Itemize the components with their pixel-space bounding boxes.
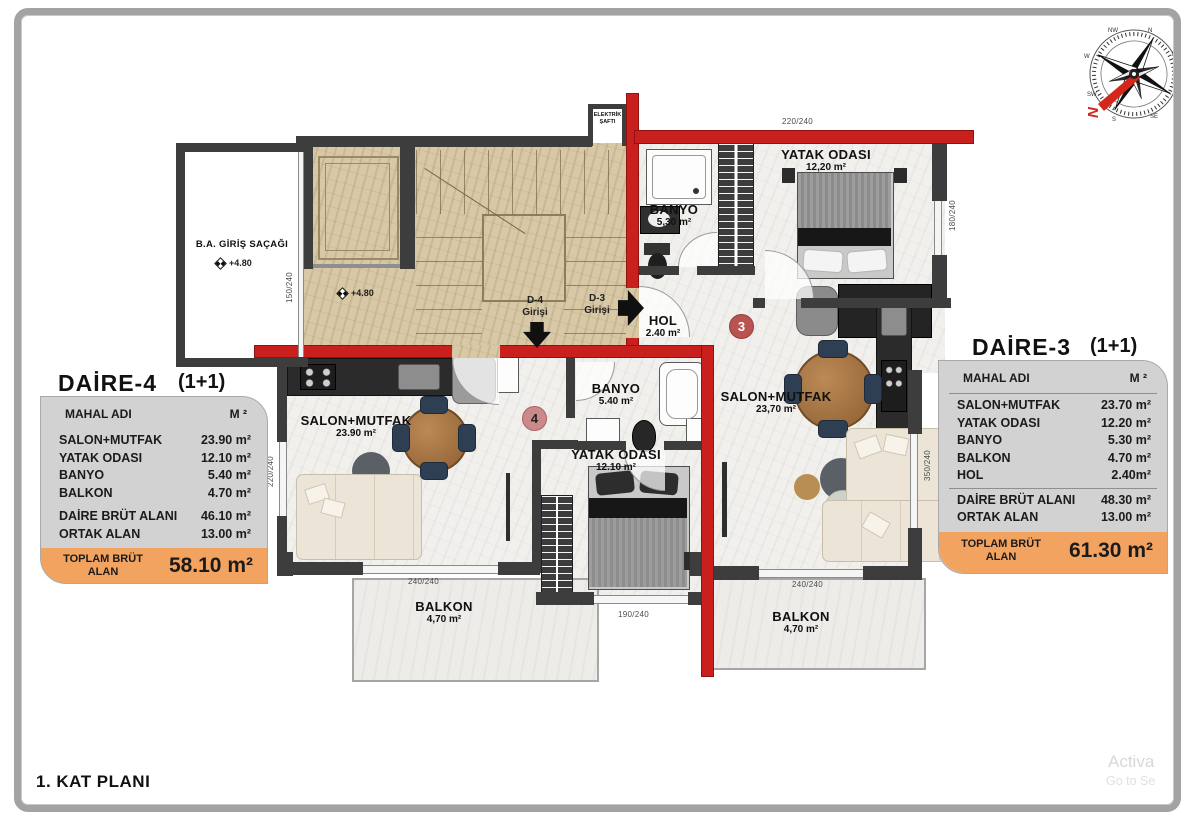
daire4-header-name: MAHAL ADI bbox=[65, 407, 132, 421]
daire3-title: DAİRE-3 bbox=[972, 334, 1071, 361]
daire3-total-row: TOPLAM BRÜT ALAN 61.30 m² bbox=[939, 532, 1167, 574]
compass-icon: N N NE E SE S SW W NW bbox=[1082, 22, 1186, 126]
salon4-side-window bbox=[279, 442, 287, 516]
hall-elevation-marker: +4.80 bbox=[338, 288, 374, 298]
room-label-balkon3: BALKON4,70 m² bbox=[755, 610, 847, 636]
dim-canopy-side: 150/240 bbox=[285, 272, 294, 303]
svg-text:SW: SW bbox=[1087, 92, 1097, 98]
yatak3-wardrobe bbox=[718, 143, 754, 275]
red-wall-horizontal-top bbox=[634, 130, 974, 144]
chair4-s bbox=[420, 462, 448, 480]
table-row: BALKON4.70 m² bbox=[41, 485, 267, 503]
table-row: BALKON4.70 m² bbox=[939, 450, 1167, 468]
yatak3-side-window bbox=[934, 201, 942, 255]
svg-text:N: N bbox=[1148, 28, 1152, 34]
banyo4-left-wall bbox=[566, 356, 575, 418]
chair4-n bbox=[420, 396, 448, 414]
room-label-banyo3: BANYO5,30 m² bbox=[628, 203, 720, 229]
canopy-elevation-marker: +4.80 bbox=[216, 258, 252, 268]
d3-entry-label: D-3Girişi bbox=[574, 293, 620, 317]
sink3-icon bbox=[881, 306, 907, 336]
room-label-yatak4: YATAK ODASI12.10 m² bbox=[558, 448, 674, 474]
divider bbox=[949, 393, 1157, 394]
yatak4-window bbox=[594, 595, 688, 604]
entrance-canopy-floor bbox=[185, 152, 299, 357]
unit4-badge: 4 bbox=[522, 406, 547, 431]
daire4-header-unit: M ² bbox=[230, 407, 247, 421]
room-label-shaft: ELEKTRİK ŞAFTI bbox=[592, 112, 623, 125]
bed4-blanket bbox=[589, 518, 687, 587]
room-label-banyo4: BANYO5.40 m² bbox=[580, 382, 652, 408]
d4-entry-label: D-4Girişi bbox=[510, 295, 560, 319]
canopy-top-wall bbox=[176, 143, 308, 152]
daire3-area-table: MAHAL ADI M ² SALON+MUTFAK23.70 m² YATAK… bbox=[938, 360, 1168, 574]
corner-block-se3 bbox=[908, 552, 922, 580]
stair-flight-left bbox=[416, 214, 482, 334]
rug3-tan bbox=[794, 474, 820, 500]
table-row: BANYO5.30 m² bbox=[939, 432, 1167, 450]
nightstand3-right bbox=[894, 168, 907, 183]
daire4-title: DAİRE-4 bbox=[58, 370, 157, 397]
yatak3-bottom-wall-left bbox=[753, 298, 765, 308]
yatak4-left-wall bbox=[532, 440, 541, 573]
red-wall-vertical-divider bbox=[701, 345, 714, 677]
shaft-top-wall bbox=[588, 104, 627, 109]
chair3-n bbox=[818, 340, 848, 358]
watermark-line2: Go to Se bbox=[1106, 774, 1155, 788]
bed4-throw-band bbox=[589, 498, 687, 518]
stairhall-top-wall bbox=[296, 136, 592, 147]
stove3-icon bbox=[881, 360, 907, 412]
room-label-canopy: B.A. GİRİŞ SAÇAĞI bbox=[188, 238, 296, 252]
dim-salon3-window: 240/240 bbox=[792, 580, 823, 589]
svg-text:W: W bbox=[1084, 54, 1090, 60]
salon3-right-wall-top bbox=[908, 370, 922, 434]
svg-text:NW: NW bbox=[1108, 28, 1118, 34]
unit3-badge: 3 bbox=[729, 314, 754, 339]
daire4-plan-type: (1+1) bbox=[178, 371, 225, 394]
radiator3 bbox=[722, 462, 727, 537]
bed3-pillow-left bbox=[802, 249, 843, 274]
elevator-door-line bbox=[313, 264, 400, 268]
dim-yatak4-window: 190/240 bbox=[618, 610, 649, 619]
dim-salon3-side: 350/240 bbox=[923, 450, 932, 481]
table-row: ORTAK ALAN13.00 m² bbox=[41, 526, 267, 544]
bed3-blanket bbox=[798, 173, 891, 228]
svg-text:S: S bbox=[1112, 117, 1116, 123]
corner-block-se4 bbox=[690, 552, 701, 576]
bed3-throw-band bbox=[798, 228, 891, 246]
stove4-icon bbox=[300, 364, 336, 390]
banyo3-hol-divider-left bbox=[639, 266, 679, 275]
page-title: 1. KAT PLANI bbox=[36, 772, 150, 792]
yatak4-wardrobe bbox=[541, 495, 573, 600]
room-label-yatak3: YATAK ODASI12,20 m² bbox=[768, 148, 884, 174]
daire4-total-row: TOPLAM BRÜT ALAN 58.10 m² bbox=[41, 548, 267, 584]
table-row: ORTAK ALAN13.00 m² bbox=[939, 509, 1167, 527]
table-row: SALON+MUTFAK23.70 m² bbox=[939, 397, 1167, 415]
dim-top-yatak3: 220/240 bbox=[782, 117, 813, 126]
dim-salon4-window: 240/240 bbox=[408, 577, 439, 586]
chair3-e bbox=[864, 374, 882, 404]
daire4-area-table: MAHAL ADI M ² SALON+MUTFAK23.90 m² YATAK… bbox=[40, 396, 268, 584]
svg-text:E: E bbox=[1176, 90, 1180, 96]
svg-text:SE: SE bbox=[1150, 114, 1158, 120]
salon3-window bbox=[759, 569, 863, 578]
corner-block-sw4 bbox=[277, 552, 293, 576]
dim-yatak3-side: 180/240 bbox=[948, 200, 957, 231]
bathtub4-inner bbox=[666, 369, 698, 419]
compass-north-mark: N bbox=[1085, 106, 1102, 118]
room-label-balkon4: BALKON4,70 m² bbox=[398, 600, 490, 626]
chair4-e bbox=[458, 424, 476, 452]
divider bbox=[949, 488, 1157, 489]
daire3-header-name: MAHAL ADI bbox=[963, 371, 1030, 385]
floor-lamp4 bbox=[506, 473, 510, 541]
canopy-left-wall bbox=[176, 143, 185, 367]
cabinet4-icon bbox=[497, 357, 519, 393]
table-row: BANYO5.40 m² bbox=[41, 467, 267, 485]
salon4-bottom-wall-left bbox=[283, 562, 363, 575]
banyo3-hol-divider-right bbox=[697, 266, 755, 275]
yatak3-right-wall-top bbox=[932, 143, 947, 201]
svg-text:NE: NE bbox=[1172, 52, 1180, 58]
elevator-cab-inner bbox=[325, 163, 390, 251]
watermark-line1: Activa bbox=[1108, 752, 1154, 772]
bed3-pillow-right bbox=[846, 248, 888, 273]
daire3-header-unit: M ² bbox=[1130, 371, 1147, 385]
table-row: HOL2.40m² bbox=[939, 467, 1167, 485]
yatak3-bottom-wall-right bbox=[801, 298, 951, 308]
room-label-hol: HOL2.40 m² bbox=[638, 314, 688, 340]
daire3-plan-type: (1+1) bbox=[1090, 335, 1137, 358]
elevation-diamond-icon bbox=[336, 287, 349, 300]
table-row: YATAK ODASI12.20 m² bbox=[939, 415, 1167, 433]
salon3-bottom-wall-left bbox=[707, 566, 759, 580]
yatak4-bottom-wall-left bbox=[536, 592, 594, 605]
salon3-side-window bbox=[910, 434, 918, 528]
table-row: DAİRE BRÜT ALANI46.10 m² bbox=[41, 508, 267, 526]
canopy-bottom-wall bbox=[176, 358, 308, 367]
salon4-window bbox=[363, 565, 498, 574]
stair-landing bbox=[482, 214, 566, 302]
shower3-drain bbox=[693, 188, 699, 194]
table-row: YATAK ODASI12.10 m² bbox=[41, 450, 267, 468]
room-label-salon3: SALON+MUTFAK23,70 m² bbox=[718, 390, 834, 416]
canopy-divider-window bbox=[298, 152, 304, 357]
shaft-left-wall bbox=[588, 104, 593, 146]
elevation-diamond-icon bbox=[214, 257, 227, 270]
table-row: SALON+MUTFAK23.90 m² bbox=[41, 432, 267, 450]
chair3-s bbox=[818, 420, 848, 438]
d4-door-gap bbox=[452, 345, 500, 358]
room-label-salon4: SALON+MUTFAK23.90 m² bbox=[298, 414, 414, 440]
apartment4-left-wall-top bbox=[277, 356, 287, 442]
sink4-icon bbox=[398, 364, 440, 390]
elevator-pillar-right bbox=[400, 147, 415, 269]
table-row: DAİRE BRÜT ALANI48.30 m² bbox=[939, 492, 1167, 510]
